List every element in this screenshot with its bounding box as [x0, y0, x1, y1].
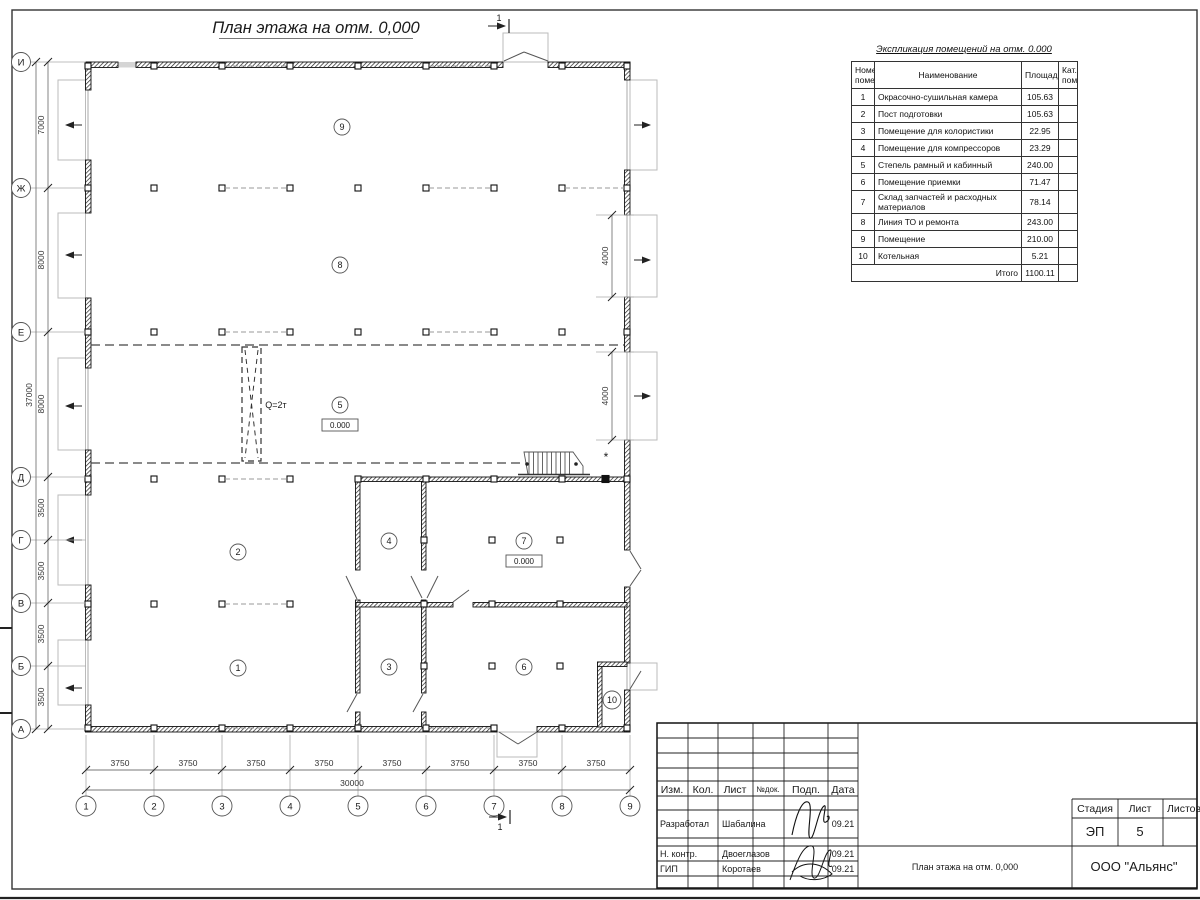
sheet-label: Лист: [1129, 803, 1152, 815]
person-name: Коротаев: [722, 864, 761, 874]
schedule-cell: 5: [852, 157, 875, 174]
schedule-cell: [1059, 214, 1078, 231]
date-value: 09.21: [832, 864, 855, 874]
dim-label: 3750: [383, 758, 402, 768]
stairs: [518, 452, 590, 475]
room-number: 6: [521, 662, 526, 672]
section-label: 1: [496, 13, 501, 23]
schedule-cell: [1059, 248, 1078, 265]
titleblock-header: №док.: [756, 785, 779, 794]
dim-label: 3750: [315, 758, 334, 768]
schedule-cell: Помещение приемки: [875, 174, 1022, 191]
dim-label: 8000: [36, 394, 46, 413]
schedule-row: 4Помещение для компрессоров23.29: [852, 140, 1078, 157]
schedule-row: 3Помещение для колористики22.95: [852, 123, 1078, 140]
schedule-cell: [1059, 89, 1078, 106]
room-schedule: Экспликация помещений на отм. 0.000 Номе…: [851, 44, 1077, 282]
schedule-cell: 10: [852, 248, 875, 265]
titleblock-header: Лист: [724, 784, 747, 796]
title-block: Изм. Кол. Лист №док. Подп. Дата Разработ…: [657, 723, 1200, 888]
dim-label: 3500: [36, 624, 46, 643]
schedule-cell: 23.29: [1022, 140, 1059, 157]
schedule-cell: 1: [852, 89, 875, 106]
axis-label: 9: [627, 802, 632, 813]
schedule-cell: Котельная: [875, 248, 1022, 265]
schedule-row: 6Помещение приемки71.47: [852, 174, 1078, 191]
axis-label: Б: [18, 662, 24, 673]
dim-total-label: 37000: [24, 383, 34, 407]
axis-label: А: [18, 725, 25, 736]
schedule-cell: 210.00: [1022, 231, 1059, 248]
sheet-number: 5: [1136, 824, 1143, 839]
axis-label: И: [18, 58, 25, 69]
dim-label: 3750: [451, 758, 470, 768]
columns-row-B: [421, 663, 563, 669]
level-mark: 0.000: [330, 421, 351, 430]
room-number: 5: [337, 400, 342, 410]
room-number: 10: [607, 695, 617, 705]
schedule-cell: 78.14: [1022, 191, 1059, 214]
sheets-label: Листов: [1167, 803, 1200, 815]
left-dimensions: 7000 8000 8000 3500 3500 3500 3500 37000: [24, 58, 86, 733]
axis-label: Г: [18, 536, 23, 547]
schedule-cell: [1059, 174, 1078, 191]
axis-label: 4: [287, 802, 292, 813]
schedule-cell: 71.47: [1022, 174, 1059, 191]
schedule-total-value: 1100.11: [1022, 265, 1059, 282]
schedule-row: 8Линия ТО и ремонта243.00: [852, 214, 1078, 231]
schedule-cell: [1059, 157, 1078, 174]
page-title: План этажа на отм. 0,000: [212, 19, 420, 37]
room-number: 7: [521, 536, 526, 546]
schedule-cell: 2: [852, 106, 875, 123]
dim-label: 8000: [36, 250, 46, 269]
schedule-cell: 22.95: [1022, 123, 1059, 140]
axis-label: 8: [559, 802, 564, 813]
titleblock-header: Подп.: [792, 784, 820, 796]
room-number: 1: [235, 663, 240, 673]
room-number: 9: [339, 122, 344, 132]
schedule-row: 2Пост подготовки105.63: [852, 106, 1078, 123]
dim-label: 3750: [519, 758, 538, 768]
schedule-cell: 105.63: [1022, 106, 1059, 123]
schedule-cell: 5.21: [1022, 248, 1059, 265]
schedule-cell: Линия ТО и ремонта: [875, 214, 1022, 231]
schedule-cell: Склад запчастей и расходных материалов: [875, 191, 1022, 214]
schedule-cell: [1059, 231, 1078, 248]
axis-label: 1: [83, 802, 88, 813]
level-mark: 0.000: [514, 557, 535, 566]
zone-boundary-lines: [91, 345, 624, 463]
schedule-cell: [1059, 106, 1078, 123]
crane-capacity-label: Q=2т: [265, 400, 286, 410]
axis-label: 2: [151, 802, 156, 813]
dim-label: 3500: [36, 687, 46, 706]
schedule-cell: 105.63: [1022, 89, 1059, 106]
stage-label: Стадия: [1077, 803, 1113, 815]
columns-row-E: [85, 329, 630, 335]
schedule-cell: 8: [852, 214, 875, 231]
role-label: Н. контр.: [660, 849, 697, 859]
schedule-row: 10Котельная5.21: [852, 248, 1078, 265]
person-name: Шабалина: [722, 819, 765, 829]
schedule-header-cat: Кат. пом.: [1059, 62, 1078, 89]
company-name: ООО "Альянс": [1091, 859, 1178, 874]
dim-label: 3750: [111, 758, 130, 768]
schedule-row: 9Помещение210.00: [852, 231, 1078, 248]
person-name: Двоеглазов: [722, 849, 770, 859]
signature: [792, 802, 829, 838]
room-number: 3: [386, 662, 391, 672]
schedule-cell: [1059, 265, 1078, 282]
signature: [790, 846, 832, 880]
schedule-header-name: Наименование: [875, 62, 1022, 89]
schedule-title: Экспликация помещений на отм. 0.000: [851, 44, 1077, 55]
dim-label: 3500: [36, 561, 46, 580]
schedule-cell: Помещение: [875, 231, 1022, 248]
schedule-table: Номер помещ. Наименование Площадь Кат. п…: [851, 61, 1078, 282]
schedule-cell: 9: [852, 231, 875, 248]
schedule-cell: 4: [852, 140, 875, 157]
bottom-dimensions: 3750 3750 3750 3750 3750 3750 3750 3750 …: [82, 735, 634, 796]
dim-label: 3750: [179, 758, 198, 768]
schedule-cell: Степель рамный и кабинный: [875, 157, 1022, 174]
asterisk-mark: *: [604, 450, 609, 464]
role-label: ГИП: [660, 864, 678, 874]
schedule-cell: Окрасочно-сушильная камера: [875, 89, 1022, 106]
section-marks: 1 1: [488, 13, 510, 832]
date-value: 09.21: [832, 849, 855, 859]
schedule-header-num: Номер помещ.: [852, 62, 875, 89]
schedule-cell: [1059, 140, 1078, 157]
role-label: Разработал: [660, 819, 709, 829]
schedule-cell: [1059, 123, 1078, 140]
columns-row-V: [85, 601, 563, 607]
titleblock-header: Дата: [831, 784, 854, 796]
col-axis-bubbles: 1 2 3 4 5 6 7 8 9: [76, 796, 640, 816]
drawing-title: План этажа на отм. 0,000: [212, 19, 420, 39]
dim-label: 3750: [247, 758, 266, 768]
schedule-row: 1Окрасочно-сушильная камера105.63: [852, 89, 1078, 106]
schedule-total-label: Итого: [852, 265, 1022, 282]
dim-label: 4000: [600, 246, 610, 265]
axis-label: 6: [423, 802, 428, 813]
drawing-sheet: { "sheet": { "title": "План этажа на отм…: [0, 0, 1200, 900]
walls: [86, 62, 631, 732]
section-label: 1: [497, 822, 502, 832]
titleblock-header: Изм.: [661, 784, 684, 796]
schedule-cell: Помещение для колористики: [875, 123, 1022, 140]
schedule-header-area: Площадь: [1022, 62, 1059, 89]
columns-row-Zh: [85, 185, 630, 191]
axis-label: Ж: [17, 184, 26, 195]
dim-label: 4000: [600, 386, 610, 405]
schedule-cell: 6: [852, 174, 875, 191]
document-title: План этажа на отм. 0,000: [912, 862, 1018, 872]
crane-symbol: [242, 347, 261, 461]
dim-label: 3750: [587, 758, 606, 768]
stage-value: ЭП: [1086, 824, 1105, 839]
schedule-total-row: Итого1100.11: [852, 265, 1078, 282]
axis-label: 5: [355, 802, 360, 813]
axis-label: Е: [18, 328, 24, 339]
schedule-row: 5Степель рамный и кабинный240.00: [852, 157, 1078, 174]
room-number: 8: [337, 260, 342, 270]
room-number: 4: [386, 536, 391, 546]
filled-column: [602, 476, 609, 483]
schedule-cell: 3: [852, 123, 875, 140]
schedule-row: 7Склад запчастей и расходных материалов7…: [852, 191, 1078, 214]
schedule-cell: Пост подготовки: [875, 106, 1022, 123]
axis-label: 3: [219, 802, 224, 813]
dim-label: 7000: [36, 115, 46, 134]
columns-row-G: [421, 537, 563, 543]
dim-total-label: 30000: [340, 778, 364, 788]
schedule-cell: 243.00: [1022, 214, 1059, 231]
schedule-cell: 7: [852, 191, 875, 214]
axis-label: Д: [18, 473, 25, 484]
axis-label: В: [18, 599, 24, 610]
date-value: 09.21: [832, 819, 855, 829]
door-leaves: [346, 52, 641, 744]
schedule-cell: Помещение для компрессоров: [875, 140, 1022, 157]
room-number: 2: [235, 547, 240, 557]
axis-label: 7: [491, 802, 496, 813]
schedule-cell: [1059, 191, 1078, 214]
dim-label: 3500: [36, 498, 46, 517]
schedule-cell: 240.00: [1022, 157, 1059, 174]
titleblock-header: Кол.: [693, 784, 714, 796]
